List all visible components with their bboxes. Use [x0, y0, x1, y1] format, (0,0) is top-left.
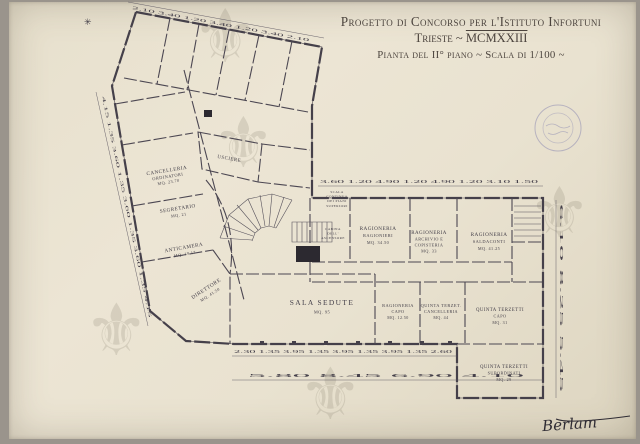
svg-text:ARCHIVIO E: ARCHIVIO E [415, 237, 444, 242]
svg-text:CABINA: CABINA [325, 227, 341, 231]
chimney-block [204, 110, 212, 117]
facade-pilasters [260, 341, 452, 345]
svg-text:MQ. 31: MQ. 31 [492, 320, 507, 325]
room-label-quinta-cancelleria: QUINTA TERZET. CANCELLERIA MQ. 44 [421, 303, 462, 320]
svg-text:MQ. 95: MQ. 95 [314, 310, 331, 315]
room-label-ragioneria-archivio: RAGIONERIA ARCHIVIO E COPISTERIA MQ. 33 [411, 231, 447, 254]
svg-text:MQ. 34.50: MQ. 34.50 [367, 240, 389, 245]
svg-text:MQ. 21: MQ. 21 [171, 211, 187, 218]
svg-text:RAGIONIERI: RAGIONIERI [363, 233, 393, 238]
svg-text:SALA SEDUTE: SALA SEDUTE [290, 298, 354, 307]
dim-right-side: 6.10 8.25 5.45 [559, 204, 564, 392]
dim-bottom-outer: 5.80 8.45 6.90 4.10 [248, 373, 524, 378]
svg-text:RAGIONERIA: RAGIONERIA [411, 231, 447, 236]
svg-text:QUINTA TERZET.: QUINTA TERZET. [421, 303, 462, 308]
svg-text:DEI PIANI: DEI PIANI [327, 199, 347, 203]
room-label-segretario: SEGRETARIO MQ. 21 [159, 203, 197, 220]
svg-text:CAPO: CAPO [392, 309, 405, 314]
note-stair: SCALA CONTINUA DEI PIANI SUPERIORI [326, 190, 348, 208]
svg-text:DELL': DELL' [327, 232, 339, 236]
room-label-ragioneria-saldaconti: RAGIONERIA SALDACONTI MQ. 41.25 [471, 232, 508, 251]
room-label-usciere: USCIERE [217, 155, 242, 164]
svg-text:RAGIONERIA: RAGIONERIA [360, 226, 397, 232]
dim-bottom-inner: 2.30 1.35 3.95 1.35 3.95 1.35 3.95 1.35 … [234, 349, 452, 354]
dim-top-wing-a: 2.10 3.40 1.20 3.40 1.20 3.40 2.10 [132, 5, 310, 42]
svg-text:QUINTA TERZETTI: QUINTA TERZETTI [480, 365, 528, 370]
svg-text:SUPERIORI: SUPERIORI [326, 204, 348, 208]
svg-text:RAGIONERIA: RAGIONERIA [382, 303, 414, 308]
svg-text:QUINTA TERZETTI: QUINTA TERZETTI [476, 308, 524, 313]
svg-text:MQ. 44: MQ. 44 [433, 315, 448, 320]
svg-text:SALDACONTI: SALDACONTI [473, 239, 506, 244]
scanned-drawing-photo: ⚜ ⚜ ⚜ ⚜ ⚜ Progetto di Concorso per l'Ist… [0, 0, 640, 444]
svg-text:CANCELLERIA: CANCELLERIA [424, 309, 458, 314]
room-label-direttore: DIRETTORE MQ. 41.50 [191, 277, 226, 306]
room-label-ragioneria-capo: RAGIONERIA CAPO MQ. 12.50 [382, 303, 414, 320]
asterisk-mark: ✳ [84, 17, 92, 27]
svg-text:MQ. 12.50: MQ. 12.50 [387, 315, 409, 320]
floor-plan: 2.10 3.40 1.20 3.40 1.20 3.40 2.10 3.60 … [0, 0, 640, 444]
svg-text:COPISTERIA: COPISTERIA [415, 243, 444, 248]
svg-text:MQ. 33: MQ. 33 [421, 249, 437, 254]
room-label-quinta-capo: QUINTA TERZETTI CAPO MQ. 31 [476, 308, 524, 325]
svg-text:CONTINUA: CONTINUA [326, 195, 347, 199]
svg-text:RAGIONERIA: RAGIONERIA [471, 232, 508, 238]
svg-text:ASCENSORE: ASCENSORE [321, 236, 345, 240]
room-label-sala-sedute: SALA SEDUTE MQ. 95 [290, 298, 354, 315]
note-elevator: CABINA DELL' ASCENSORE [321, 227, 345, 240]
svg-text:CAPO: CAPO [494, 314, 507, 319]
svg-text:SUBORDINATI: SUBORDINATI [488, 371, 521, 376]
svg-text:USCIERE: USCIERE [217, 155, 242, 164]
svg-text:MQ. 41.25: MQ. 41.25 [478, 246, 500, 251]
room-label-cancelleria: CANCELLERIA ORDINATORI MQ. 23.70 [146, 165, 189, 188]
elevator-block [296, 246, 320, 262]
dim-top-wing-c: 3.60 1.20 4.90 1.20 4.90 1.20 3.10 1.50 [320, 179, 538, 184]
stamp-icon [535, 105, 581, 151]
svg-text:MQ. 29: MQ. 29 [496, 377, 511, 382]
dim-left-wing-b: 4.15 1.35 3.60 1.35 3.60 1.35 3.60 1.35 … [101, 96, 153, 318]
svg-text:SCALA: SCALA [330, 190, 343, 194]
room-label-ragioneria-ragionieri: RAGIONERIA RAGIONIERI MQ. 34.50 [360, 226, 397, 245]
